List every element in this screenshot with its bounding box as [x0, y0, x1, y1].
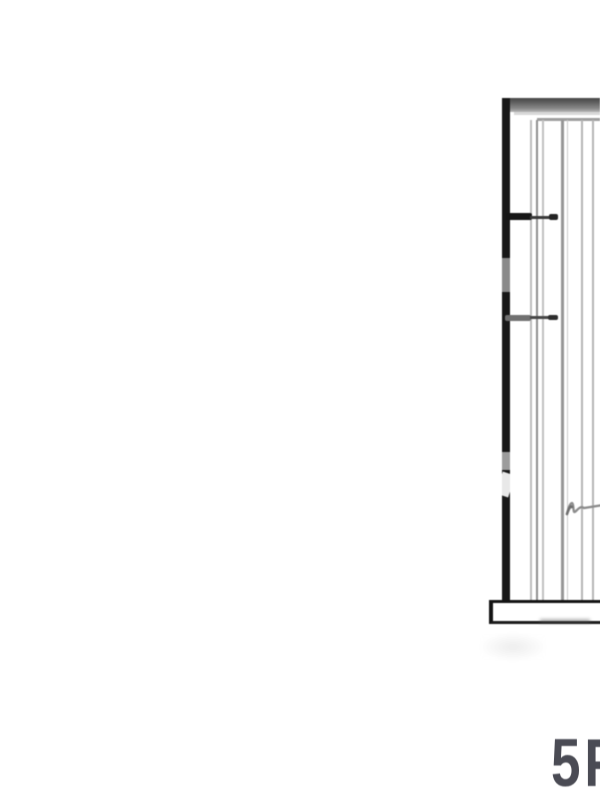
jamb-highlight-upper — [502, 258, 510, 292]
panel-line — [542, 120, 544, 600]
panel-line — [581, 120, 583, 600]
base-shadow-smear — [540, 619, 590, 623]
panel-line — [567, 120, 568, 600]
panel-line — [592, 120, 594, 600]
hinge-tick-lower-line — [530, 316, 549, 319]
door-elevation-drawing — [0, 0, 600, 800]
panel-top-edge — [537, 118, 600, 121]
hinge-tick-upper-line — [530, 216, 550, 219]
panel-line — [536, 120, 538, 600]
jamb-highlight-lower — [502, 452, 510, 470]
panel-line — [561, 120, 564, 600]
hinge-tick-upper-end — [549, 214, 558, 220]
hinge-tick-lower — [505, 315, 531, 321]
jamb-white-notch — [496, 472, 515, 498]
hinge-tick-upper — [506, 213, 532, 220]
handwritten-squiggle-icon — [563, 494, 600, 520]
panel-line — [530, 120, 532, 600]
door-jamb — [502, 98, 510, 601]
hinge-tick-lower-end — [548, 315, 558, 320]
door-header-bar — [502, 98, 600, 112]
floorplan-canvas: 5F — [0, 0, 600, 800]
floor-label: 5F — [551, 729, 600, 797]
faint-smudge — [478, 632, 548, 662]
door-header-shadow-line — [514, 112, 600, 115]
